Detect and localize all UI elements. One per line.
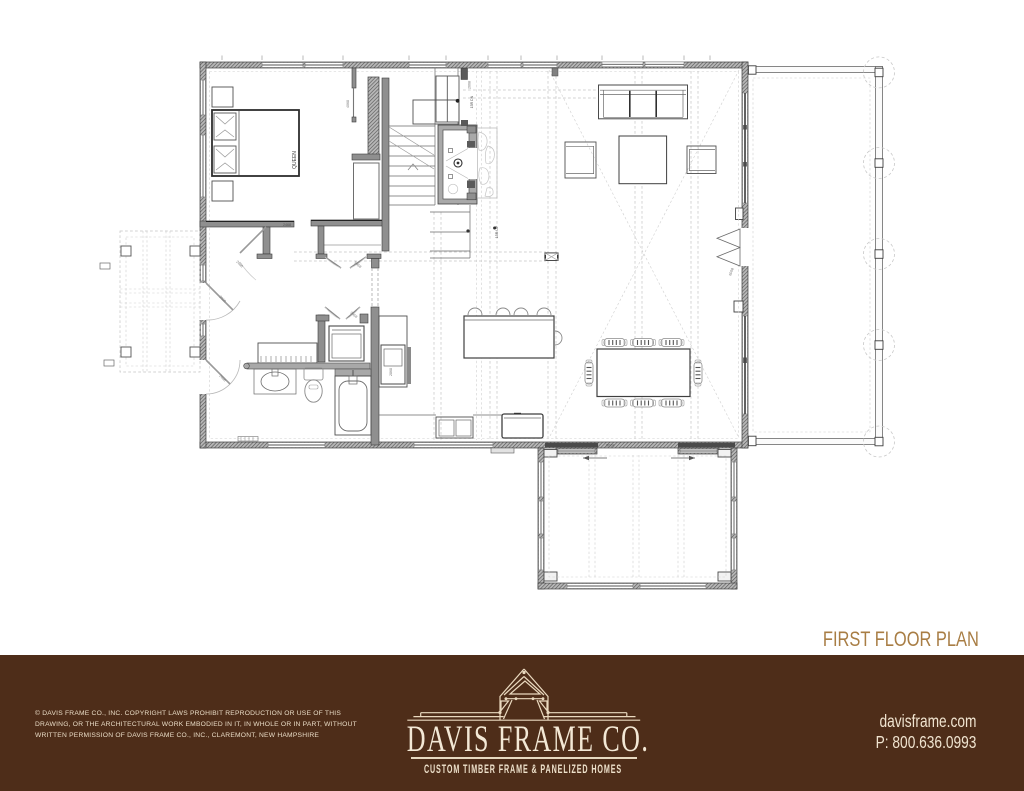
svg-text:3068: 3068 <box>349 311 358 319</box>
svg-text:2468: 2468 <box>218 374 226 382</box>
svg-text:QUEEN: QUEEN <box>292 151 298 169</box>
svg-text:2468: 2468 <box>283 223 291 227</box>
svg-text:2868: 2868 <box>389 368 393 376</box>
svg-text:15R DN: 15R DN <box>470 95 474 108</box>
svg-text:4068: 4068 <box>346 100 350 108</box>
svg-text:2468: 2468 <box>235 260 243 268</box>
svg-text:2668: 2668 <box>468 81 472 89</box>
svg-text:9068: 9068 <box>606 444 614 448</box>
svg-text:6068: 6068 <box>728 267 734 276</box>
